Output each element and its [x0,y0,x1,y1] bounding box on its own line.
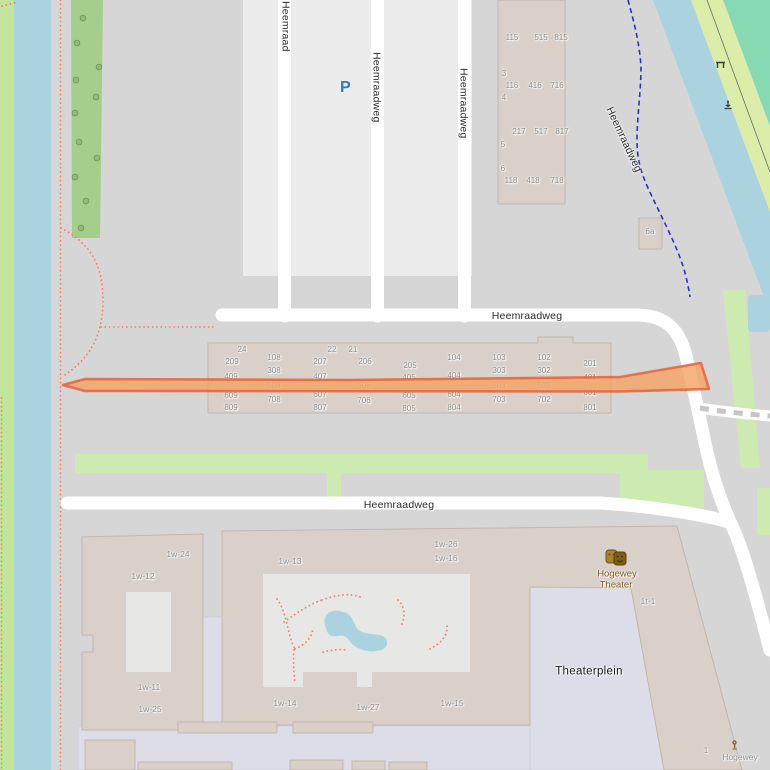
map-canvas[interactable]: Heemraadweg HeemraadwegHeemraadwegHeemra… [0,0,770,770]
canal-left [14,0,51,770]
building-6a [639,218,662,249]
map-base-layer [0,0,770,770]
building-top-right [498,0,565,204]
building-row-center [208,337,611,413]
grass-strip-mid [75,454,648,473]
grass-edge-right [757,488,770,535]
parking-lot-area [243,0,472,276]
grass-connector [327,473,341,500]
water-patch-right [748,295,770,332]
grass-strip-left [0,0,14,770]
